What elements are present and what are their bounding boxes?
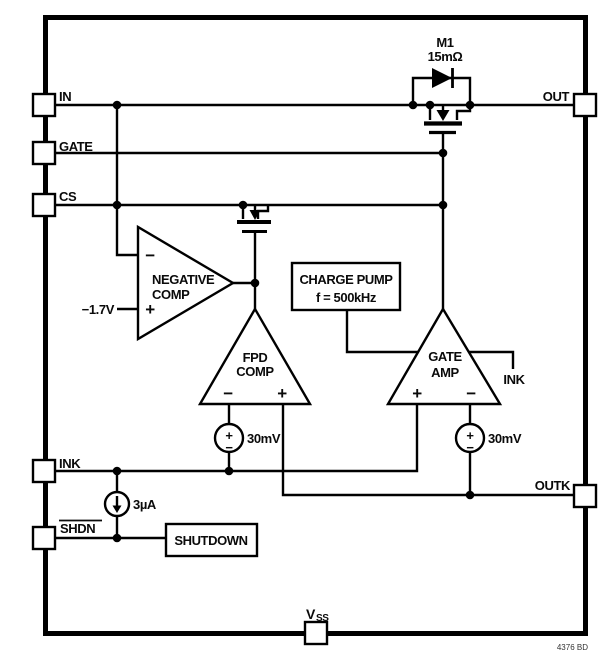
negative-comp-label-2: COMP [152, 287, 190, 302]
junction-dot [113, 101, 122, 110]
pin-outk-square [574, 485, 596, 507]
gate-amp-label-1: GATE [428, 349, 462, 364]
pin-in-label: IN [59, 89, 71, 104]
junction-dot [439, 149, 448, 158]
outk-net-wire [283, 404, 574, 495]
fpd-comp-minus-sign: − [223, 384, 233, 403]
junction-dot [426, 101, 435, 110]
ic-outline [46, 18, 586, 634]
negative-comp-minus-sign: − [145, 246, 155, 265]
m1-body-arrow-icon [437, 110, 450, 121]
gate-amp-plus-sign: + [412, 384, 422, 403]
pin-gate-square [33, 142, 55, 164]
gate-amp-label-2: AMP [431, 365, 459, 380]
pin-out-square [574, 94, 596, 116]
negative-comp-label-1: NEGATIVE [152, 272, 215, 287]
gate-amp-offset-source: + − [456, 424, 484, 455]
pin-shdn-square [33, 527, 55, 549]
shutdown-label: SHUTDOWN [174, 533, 247, 548]
m1-designator-label: M1 [436, 35, 453, 50]
negative-comp-plus-sign: + [145, 300, 155, 319]
pin-ink-label: INK [59, 456, 81, 471]
gate-amp-offset-value-label: 30mV [488, 431, 522, 446]
junction-dot [466, 101, 475, 110]
pin-ink-square [33, 460, 55, 482]
charge-pump-freq-label: f = 500kHz [316, 290, 377, 305]
in-sense-wire [117, 105, 138, 255]
fpd-offset-value-label: 30mV [247, 431, 281, 446]
diode-anode-triangle [432, 68, 452, 88]
fpd-offset-minus: − [225, 440, 233, 455]
pin-cs-label: CS [59, 189, 77, 204]
junction-dot [239, 201, 248, 210]
charge-pump-label: CHARGE PUMP [299, 272, 393, 287]
pin-in-square [33, 94, 55, 116]
junction-dot [466, 491, 475, 500]
bias-value-label: 3µA [133, 497, 157, 512]
pin-vss-subscript: SS [316, 613, 329, 624]
junction-dot [251, 279, 260, 288]
bias-current-source [105, 492, 129, 516]
block-diagram: + − + − IN GATE CS INK SHDN OUT OUTK V S… [0, 0, 611, 658]
junction-dot [113, 201, 122, 210]
gate-amp-offset-minus: − [466, 440, 474, 455]
charge-pump-output-wire [347, 310, 418, 352]
pin-cs-square [33, 194, 55, 216]
junction-dot [439, 201, 448, 210]
pin-vss-square [305, 622, 327, 644]
pin-vss-label: V [306, 606, 316, 622]
body-diode-icon [432, 68, 453, 88]
fpd-comp-label-1: FPD [243, 350, 268, 365]
fpd-comp-label-2: COMP [236, 364, 274, 379]
junction-dot [113, 467, 122, 476]
junction-dot [409, 101, 418, 110]
block-diagram-page: + − + − IN GATE CS INK SHDN OUT OUTK V S… [0, 0, 611, 658]
fpd-comp-plus-sign: + [277, 384, 287, 403]
gate-amp-ink-net-label: INK [503, 372, 525, 387]
gate-amp-minus-sign: − [466, 384, 476, 403]
pin-gate-label: GATE [59, 139, 93, 154]
junction-dot [225, 467, 234, 476]
junction-dot [113, 534, 122, 543]
figure-code-label: 4376 BD [557, 643, 588, 652]
sense-right-stub [258, 205, 268, 219]
pin-shdn-label: SHDN [60, 521, 95, 536]
pin-out-label: OUT [543, 89, 570, 104]
fpd-offset-source: + − [215, 424, 243, 455]
m1-resistance-label: 15mΩ [428, 49, 463, 64]
negative-ref-label: −1.7V [82, 302, 115, 317]
pin-outk-label: OUTK [535, 478, 571, 493]
